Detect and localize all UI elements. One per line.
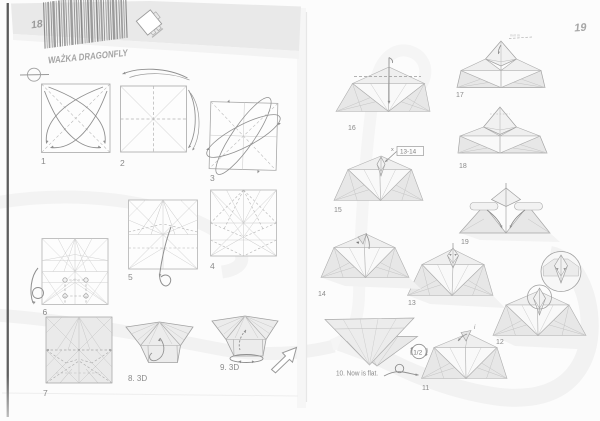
- svg-text:16: 16: [348, 125, 356, 132]
- svg-text:18: 18: [459, 163, 467, 170]
- svg-text:11: 11: [422, 385, 429, 392]
- svg-text:13: 13: [408, 300, 416, 307]
- svg-text:10. Now is flat.: 10. Now is flat.: [336, 369, 378, 378]
- svg-text:15: 15: [334, 207, 342, 214]
- svg-text:m m m: m m m: [510, 34, 520, 38]
- svg-text:1/2: 1/2: [413, 350, 422, 357]
- svg-text:5: 5: [128, 272, 133, 282]
- svg-text:17: 17: [456, 92, 464, 99]
- svg-text:x: x: [391, 147, 394, 153]
- svg-text:13-14: 13-14: [400, 149, 417, 156]
- svg-text:19: 19: [574, 22, 587, 35]
- svg-text:14: 14: [318, 291, 326, 298]
- svg-text:7: 7: [43, 388, 48, 398]
- svg-text:4: 4: [210, 261, 215, 271]
- svg-text:19: 19: [461, 239, 469, 246]
- svg-text:8. 3D: 8. 3D: [128, 374, 147, 383]
- svg-text:12: 12: [496, 339, 504, 346]
- svg-text:3: 3: [210, 173, 215, 183]
- svg-text:18: 18: [31, 18, 43, 32]
- svg-text:2: 2: [120, 158, 125, 168]
- svg-text:6: 6: [43, 307, 48, 317]
- svg-text:1: 1: [41, 156, 46, 166]
- svg-text:9. 3D: 9. 3D: [220, 363, 239, 372]
